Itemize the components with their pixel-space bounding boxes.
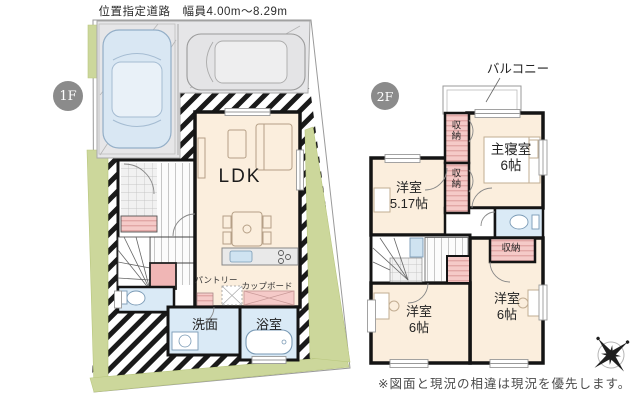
west-room-6a-size: 6帖 bbox=[406, 320, 432, 336]
disclaimer-text: ※図面と現況の相違は現況を優先します。 bbox=[378, 377, 631, 392]
balcony-2f bbox=[443, 78, 521, 114]
master-bedroom-label: 主寝室 6帖 bbox=[491, 142, 532, 174]
floorplan-page: 位置指定道路 幅員4.00m〜8.29m 1F 2F LDK パントリー カップ… bbox=[0, 0, 640, 400]
washroom-label: 洗面 bbox=[192, 317, 218, 333]
floorplan-canvas bbox=[0, 0, 640, 400]
compass-rose-icon bbox=[580, 323, 640, 384]
west-room-517-label: 洋室 5.17帖 bbox=[390, 180, 428, 211]
floor-badge-1f: 1F bbox=[53, 81, 83, 111]
stairs-winder-1f bbox=[118, 237, 150, 292]
cupboard-label: カップボード bbox=[241, 281, 292, 291]
bathroom-label: 浴室 bbox=[256, 317, 282, 333]
car-blue-icon bbox=[103, 30, 171, 148]
toilet-icon-2f bbox=[510, 215, 528, 229]
closet-top-label: 収納 bbox=[449, 120, 460, 141]
west-room-517-name: 洋室 bbox=[390, 180, 428, 196]
master-bedroom-name: 主寝室 bbox=[491, 142, 532, 158]
garden-right bbox=[305, 127, 350, 362]
west-room-6b-size: 6帖 bbox=[494, 307, 520, 323]
closet-mid-label: 収納 bbox=[449, 168, 460, 189]
garden-left bbox=[87, 150, 108, 389]
kitchen-counter bbox=[222, 248, 298, 265]
understair-closet bbox=[150, 263, 176, 289]
ldk-label: LDK bbox=[219, 166, 262, 189]
entrance-tiles bbox=[121, 163, 157, 216]
west-room-6b-name: 洋室 bbox=[494, 291, 520, 307]
toilet-icon bbox=[127, 291, 145, 305]
pantry-label: パントリー bbox=[195, 275, 238, 285]
west-room-6b-label: 洋室 6帖 bbox=[494, 291, 520, 322]
closet-small bbox=[447, 256, 470, 283]
west-room-6a-name: 洋室 bbox=[406, 304, 432, 320]
floor-badge-2f: 2F bbox=[371, 82, 399, 110]
bathtub-icon bbox=[246, 330, 292, 354]
car-gray-icon bbox=[187, 34, 305, 90]
stairs-straight-1f bbox=[150, 237, 195, 263]
west-room-6a-label: 洋室 6帖 bbox=[406, 304, 432, 335]
balcony-label: バルコニー bbox=[487, 62, 549, 77]
shoe-cabinet bbox=[121, 216, 157, 232]
closet-side-label: 収納 bbox=[501, 243, 520, 254]
west-room-517-size: 5.17帖 bbox=[390, 196, 428, 212]
road-label: 位置指定道路 幅員4.00m〜8.29m bbox=[99, 6, 288, 20]
master-bedroom-size: 6帖 bbox=[491, 158, 532, 174]
